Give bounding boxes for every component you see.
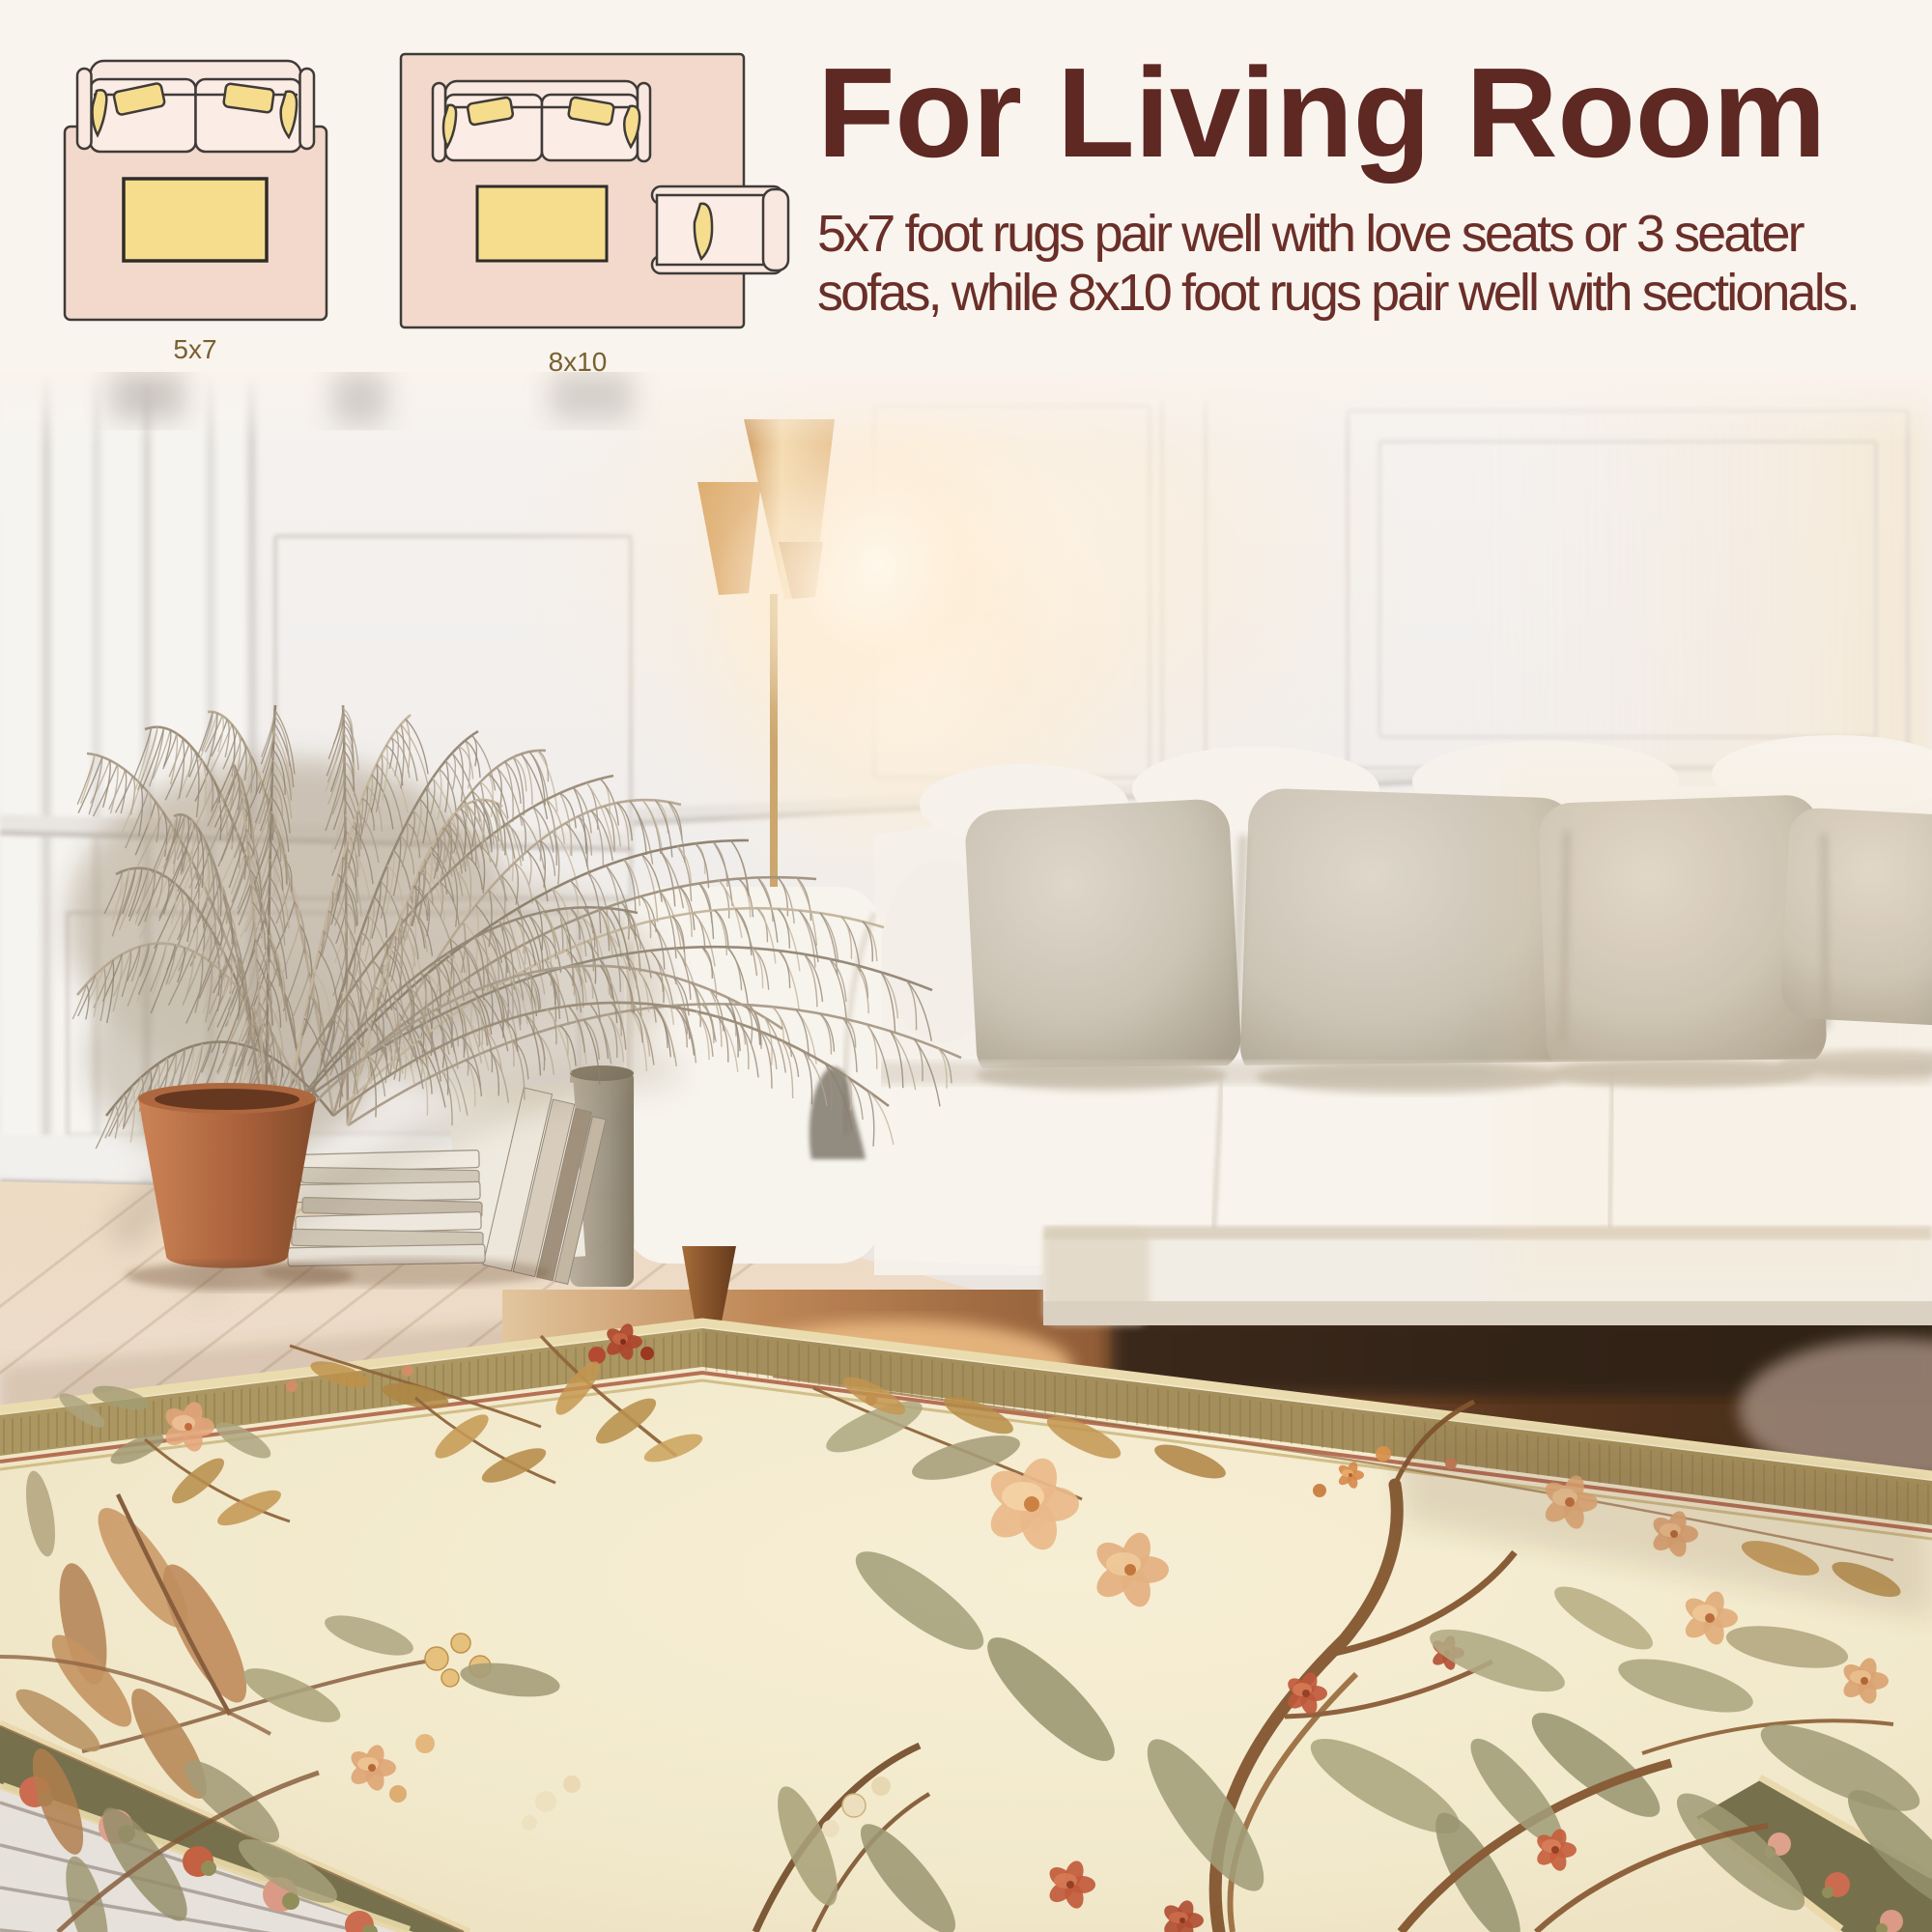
svg-text:5x7: 5x7 [173, 334, 216, 364]
